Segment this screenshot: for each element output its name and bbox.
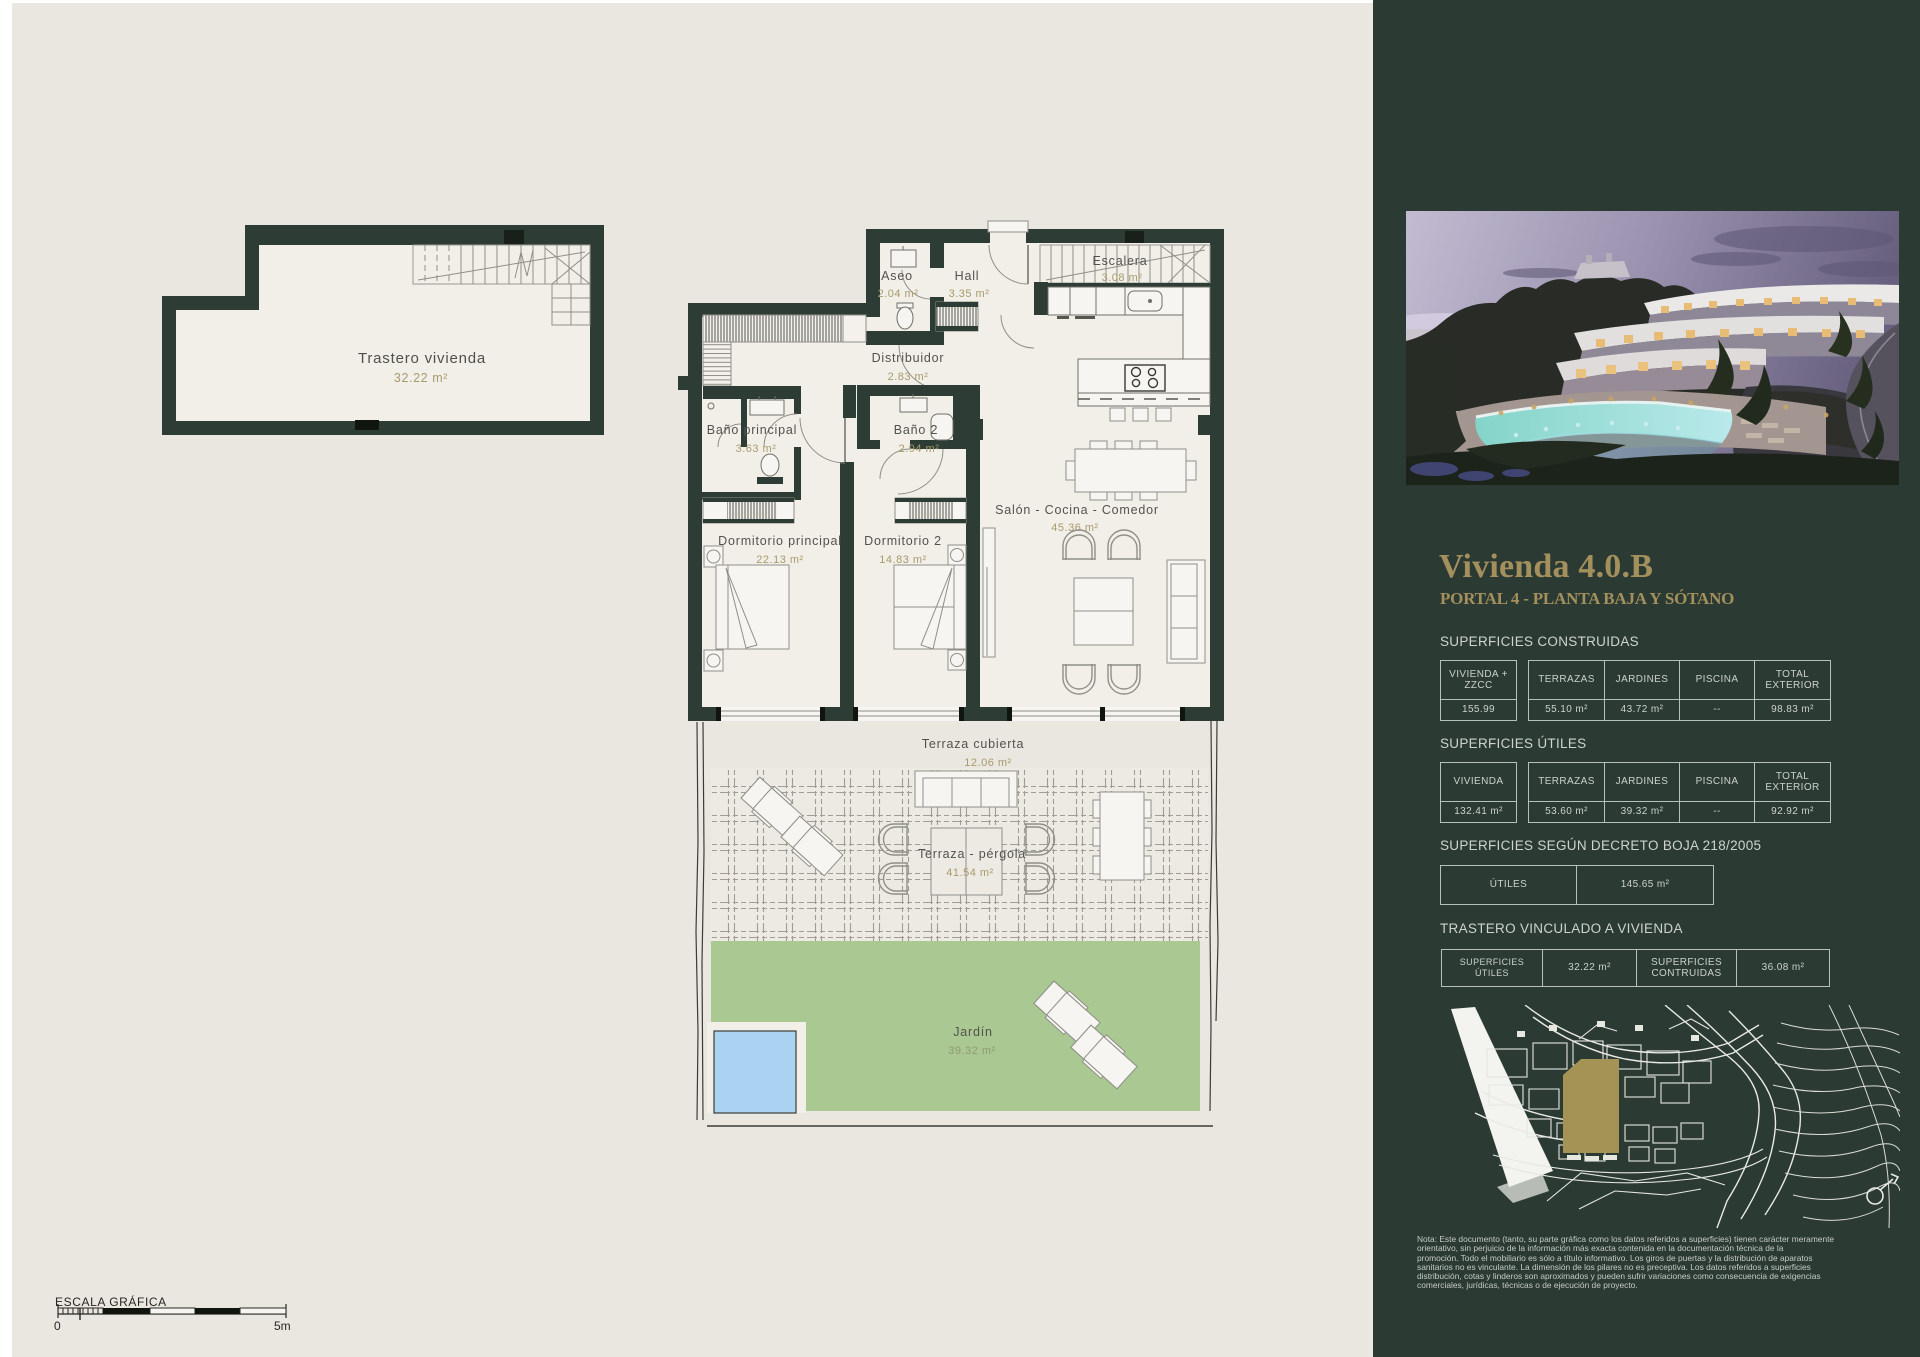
svg-text:5m: 5m bbox=[274, 1319, 291, 1333]
svg-text:Baño 2: Baño 2 bbox=[894, 423, 938, 437]
svg-text:ESCALA GRÁFICA: ESCALA GRÁFICA bbox=[55, 1294, 167, 1309]
svg-text:Dormitorio 2: Dormitorio 2 bbox=[864, 534, 942, 548]
svg-text:Terraza cubierta: Terraza cubierta bbox=[922, 737, 1024, 751]
svg-text:Dormitorio principal: Dormitorio principal bbox=[718, 534, 842, 548]
svg-text:Terraza - pérgola: Terraza - pérgola bbox=[918, 847, 1026, 861]
svg-text:2.04 m²: 2.04 m² bbox=[878, 288, 919, 300]
svg-text:Distribuidor: Distribuidor bbox=[872, 351, 945, 365]
svg-text:Escalera: Escalera bbox=[1092, 254, 1147, 268]
svg-text:22.13 m²: 22.13 m² bbox=[756, 554, 803, 566]
svg-text:3.08 m²: 3.08 m² bbox=[1102, 272, 1143, 284]
svg-text:Aseo: Aseo bbox=[881, 269, 913, 283]
svg-text:39.32 m²: 39.32 m² bbox=[948, 1045, 995, 1057]
svg-text:45.36 m²: 45.36 m² bbox=[1051, 522, 1098, 534]
svg-text:Baño principal: Baño principal bbox=[707, 423, 797, 437]
svg-text:3.63 m²: 3.63 m² bbox=[736, 443, 777, 455]
svg-text:Trastero vivienda: Trastero vivienda bbox=[358, 350, 486, 367]
svg-text:Hall: Hall bbox=[955, 269, 980, 283]
svg-text:2.94 m²: 2.94 m² bbox=[899, 443, 940, 455]
svg-text:41.54 m²: 41.54 m² bbox=[946, 867, 993, 879]
svg-text:0: 0 bbox=[54, 1319, 61, 1333]
svg-text:32.22 m²: 32.22 m² bbox=[394, 371, 448, 385]
svg-text:14.83 m²: 14.83 m² bbox=[879, 554, 926, 566]
svg-text:12.06 m²: 12.06 m² bbox=[964, 757, 1011, 769]
svg-text:Jardín: Jardín bbox=[953, 1025, 993, 1039]
svg-text:Salón - Cocina - Comedor: Salón - Cocina - Comedor bbox=[995, 503, 1159, 517]
svg-text:3.35 m²: 3.35 m² bbox=[949, 288, 990, 300]
